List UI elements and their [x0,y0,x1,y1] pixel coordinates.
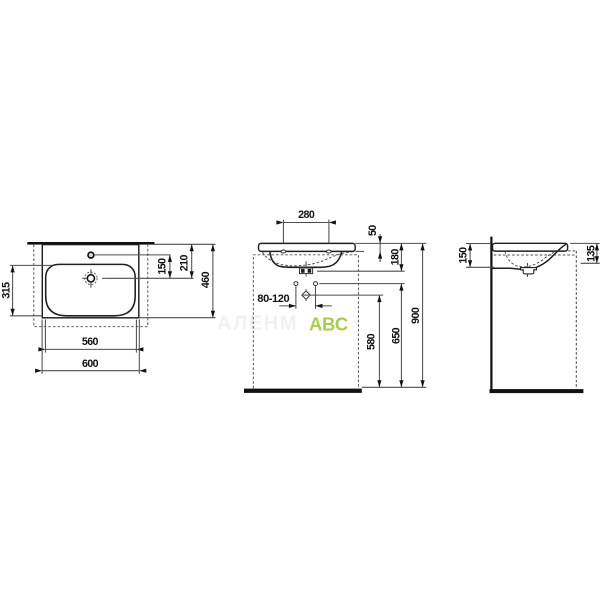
svg-text:50: 50 [367,225,379,236]
svg-text:80-120: 80-120 [257,293,289,305]
svg-text:560: 560 [82,336,99,348]
svg-text:600: 600 [82,358,99,370]
svg-text:150: 150 [457,247,469,264]
svg-text:180: 180 [390,249,402,266]
svg-text:150: 150 [157,258,169,275]
svg-text:580: 580 [366,333,378,350]
svg-text:ABC: ABC [309,314,348,335]
svg-text:900: 900 [410,307,422,324]
svg-text:460: 460 [200,271,212,288]
svg-text:280: 280 [298,209,315,221]
svg-text:АЛЕНМ: АЛЕНМ [217,313,298,335]
svg-text:135: 135 [585,245,597,262]
svg-text:210: 210 [178,255,190,272]
svg-text:650: 650 [390,327,402,344]
svg-text:315: 315 [0,282,12,299]
